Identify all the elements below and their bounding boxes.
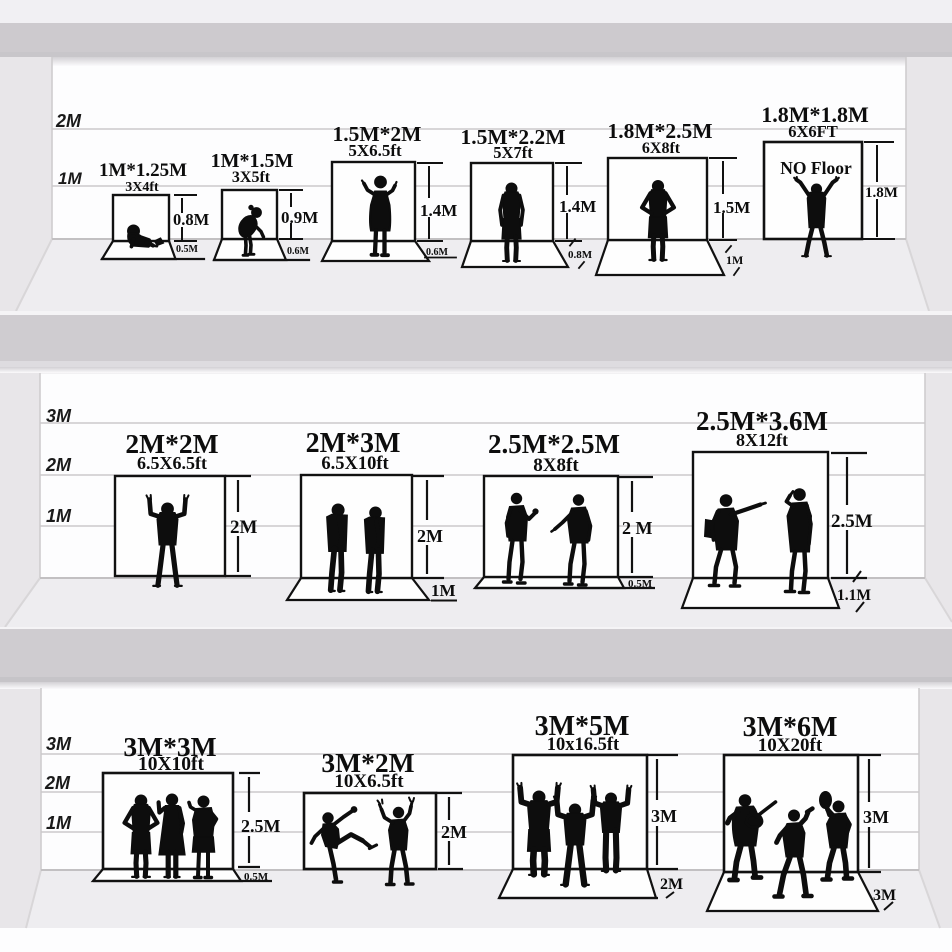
svg-text:2M: 2M bbox=[55, 111, 82, 131]
svg-text:0.5M: 0.5M bbox=[244, 871, 269, 883]
svg-text:8X12ft: 8X12ft bbox=[736, 430, 788, 450]
svg-text:2M: 2M bbox=[45, 455, 72, 475]
svg-text:5X6.5ft: 5X6.5ft bbox=[348, 141, 402, 160]
svg-text:0.5M: 0.5M bbox=[628, 578, 653, 590]
svg-text:0.8M: 0.8M bbox=[568, 249, 593, 261]
svg-text:8X8ft: 8X8ft bbox=[533, 455, 579, 476]
svg-text:1.8M: 1.8M bbox=[865, 185, 898, 201]
svg-text:0.9M: 0.9M bbox=[281, 208, 318, 227]
svg-text:2M: 2M bbox=[417, 526, 443, 546]
svg-text:2 M: 2 M bbox=[622, 518, 653, 538]
svg-text:6X8ft: 6X8ft bbox=[642, 140, 681, 157]
svg-text:2M: 2M bbox=[660, 876, 683, 893]
svg-text:1.4M: 1.4M bbox=[420, 201, 457, 220]
svg-text:1M: 1M bbox=[46, 813, 72, 833]
svg-text:3M: 3M bbox=[46, 734, 72, 754]
svg-text:2M: 2M bbox=[44, 773, 71, 793]
svg-text:1M: 1M bbox=[58, 169, 82, 188]
svg-text:3M: 3M bbox=[873, 887, 896, 904]
svg-text:1M: 1M bbox=[726, 253, 743, 267]
svg-text:3M: 3M bbox=[46, 406, 72, 426]
svg-text:1M*1.25M: 1M*1.25M bbox=[99, 160, 187, 181]
svg-text:0.6M: 0.6M bbox=[287, 246, 310, 257]
svg-text:NO Floor: NO Floor bbox=[780, 158, 852, 178]
svg-text:3X5ft: 3X5ft bbox=[232, 169, 271, 186]
svg-text:1.4M: 1.4M bbox=[559, 197, 596, 216]
svg-text:10X10ft: 10X10ft bbox=[138, 754, 205, 775]
svg-text:1.1M: 1.1M bbox=[837, 587, 871, 604]
svg-text:2.5M: 2.5M bbox=[241, 816, 281, 836]
svg-text:5X7ft: 5X7ft bbox=[493, 143, 533, 162]
svg-text:0.8M: 0.8M bbox=[173, 210, 210, 229]
svg-text:6.5X10ft: 6.5X10ft bbox=[321, 454, 389, 474]
svg-text:3M: 3M bbox=[651, 806, 677, 826]
svg-text:2.5M: 2.5M bbox=[831, 511, 873, 532]
svg-text:2M: 2M bbox=[230, 517, 258, 538]
svg-text:1M: 1M bbox=[431, 581, 456, 600]
svg-text:1.5M: 1.5M bbox=[713, 198, 750, 217]
svg-text:3M: 3M bbox=[863, 807, 889, 827]
svg-text:2M: 2M bbox=[441, 822, 467, 842]
svg-text:10X20ft: 10X20ft bbox=[758, 735, 823, 756]
svg-text:6.5X6.5ft: 6.5X6.5ft bbox=[137, 453, 207, 473]
svg-text:0.6M: 0.6M bbox=[426, 247, 449, 258]
svg-text:10X6.5ft: 10X6.5ft bbox=[334, 771, 404, 792]
svg-text:6X6FT: 6X6FT bbox=[788, 122, 838, 141]
svg-text:3X4ft: 3X4ft bbox=[125, 180, 159, 195]
svg-text:10x16.5ft: 10x16.5ft bbox=[547, 735, 620, 755]
svg-text:1M: 1M bbox=[46, 506, 72, 526]
svg-text:0.5M: 0.5M bbox=[176, 244, 199, 255]
